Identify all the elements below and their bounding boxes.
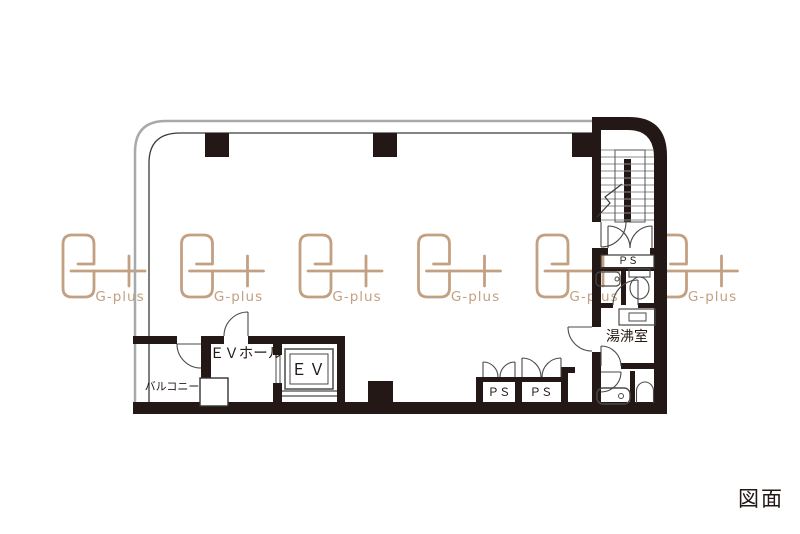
door-arc: [630, 226, 652, 248]
watermark-text: G-plus: [688, 289, 737, 305]
door-arc: [568, 327, 592, 351]
ev-shaft-right-wall: [337, 336, 345, 402]
column: [205, 133, 229, 157]
ev-hall-label: ＥＶホール: [210, 346, 283, 362]
plan-layer: バルコニー ＥＶホール ＥＶ ＰＳ ＰＳ ＰＳ 湯沸室: [133, 117, 667, 414]
wash-basin-icon: [597, 388, 630, 404]
ps-label: ＰＳ: [530, 385, 553, 399]
door-arc: [542, 358, 561, 377]
ps-label: ＰＳ: [488, 385, 511, 399]
kitchenette-label: 湯沸室: [606, 328, 648, 345]
counter-icon: [619, 309, 655, 325]
watermark-text: G-plus: [95, 289, 144, 305]
g-plus-watermark: G-plus: [182, 235, 264, 305]
door-arc: [601, 372, 621, 392]
door-arc: [483, 362, 498, 377]
floor-plan-drawing: G-plus G-plus G-plus G-plus G-plus G-plu…: [0, 0, 800, 534]
floor-plan-canvas: G-plus G-plus G-plus G-plus G-plus G-plu…: [0, 0, 800, 534]
g-plus-watermark: G-plus: [656, 235, 738, 305]
door-arcs: [177, 222, 652, 392]
ev-shaft-top-wall: [273, 336, 345, 344]
door-arc: [224, 312, 248, 336]
door-arc: [601, 222, 626, 247]
g-plus-watermark: G-plus: [419, 235, 501, 305]
column: [368, 381, 393, 404]
column: [373, 133, 397, 157]
door-arc: [601, 346, 621, 366]
white-column: [200, 378, 228, 406]
drawing-caption: 図面: [738, 487, 784, 511]
watermark-text: G-plus: [451, 289, 500, 305]
watermark-text: G-plus: [332, 289, 381, 305]
door-arc: [522, 358, 541, 377]
walls: [133, 117, 667, 414]
g-plus-watermark: G-plus: [300, 235, 382, 305]
elevator-label: ＥＶ: [291, 360, 327, 379]
watermark-text: G-plus: [214, 289, 263, 305]
toilet-icon: [637, 382, 654, 403]
door-arc: [177, 344, 201, 368]
balcony-wall: [133, 336, 177, 344]
door-arc: [500, 362, 515, 377]
column: [572, 133, 596, 157]
ps-label: ＰＳ: [618, 256, 638, 267]
toilet-icon: [629, 269, 650, 299]
balcony-label: バルコニー: [145, 380, 200, 393]
g-plus-watermark: G-plus: [63, 235, 145, 305]
